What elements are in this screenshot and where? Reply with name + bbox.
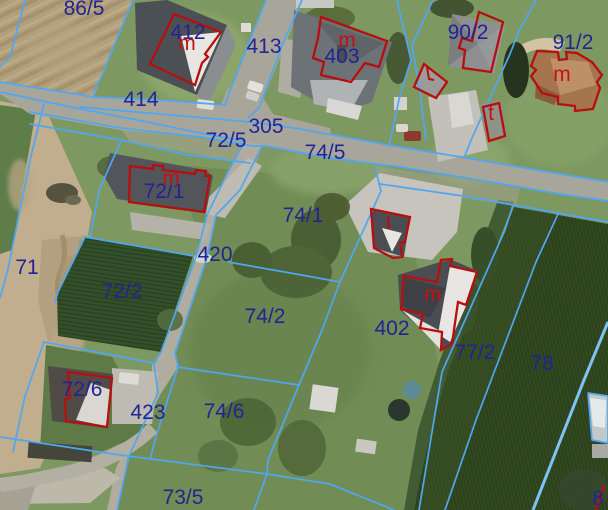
svg-text:71: 71 (15, 256, 38, 279)
svg-text:72/5: 72/5 (206, 129, 247, 152)
svg-text:413: 413 (246, 35, 281, 58)
svg-text:74/1: 74/1 (283, 204, 324, 227)
svg-text:402: 402 (374, 317, 409, 340)
svg-text:86/5: 86/5 (64, 0, 105, 20)
svg-text:m: m (178, 32, 196, 55)
svg-text:414: 414 (123, 88, 158, 111)
svg-text:423: 423 (130, 401, 165, 424)
svg-text:420: 420 (197, 243, 232, 266)
svg-text:74/6: 74/6 (204, 400, 245, 423)
svg-text:78: 78 (530, 352, 553, 375)
svg-text:8: 8 (592, 487, 604, 510)
svg-text:t: t (488, 102, 494, 125)
svg-text:305: 305 (248, 115, 283, 138)
svg-text:74/2: 74/2 (245, 305, 286, 328)
svg-text:m: m (424, 283, 442, 306)
svg-text:72/2: 72/2 (102, 280, 143, 303)
svg-text:m: m (338, 29, 356, 52)
svg-text:77/2: 77/2 (455, 341, 496, 364)
svg-text:90/2: 90/2 (448, 21, 489, 44)
svg-text:74/5: 74/5 (305, 141, 346, 164)
svg-text:m: m (162, 167, 180, 190)
svg-text:73/5: 73/5 (163, 486, 204, 509)
svg-text:72/6: 72/6 (62, 378, 103, 401)
svg-text:m: m (553, 63, 571, 86)
svg-text:91/2: 91/2 (553, 31, 594, 54)
